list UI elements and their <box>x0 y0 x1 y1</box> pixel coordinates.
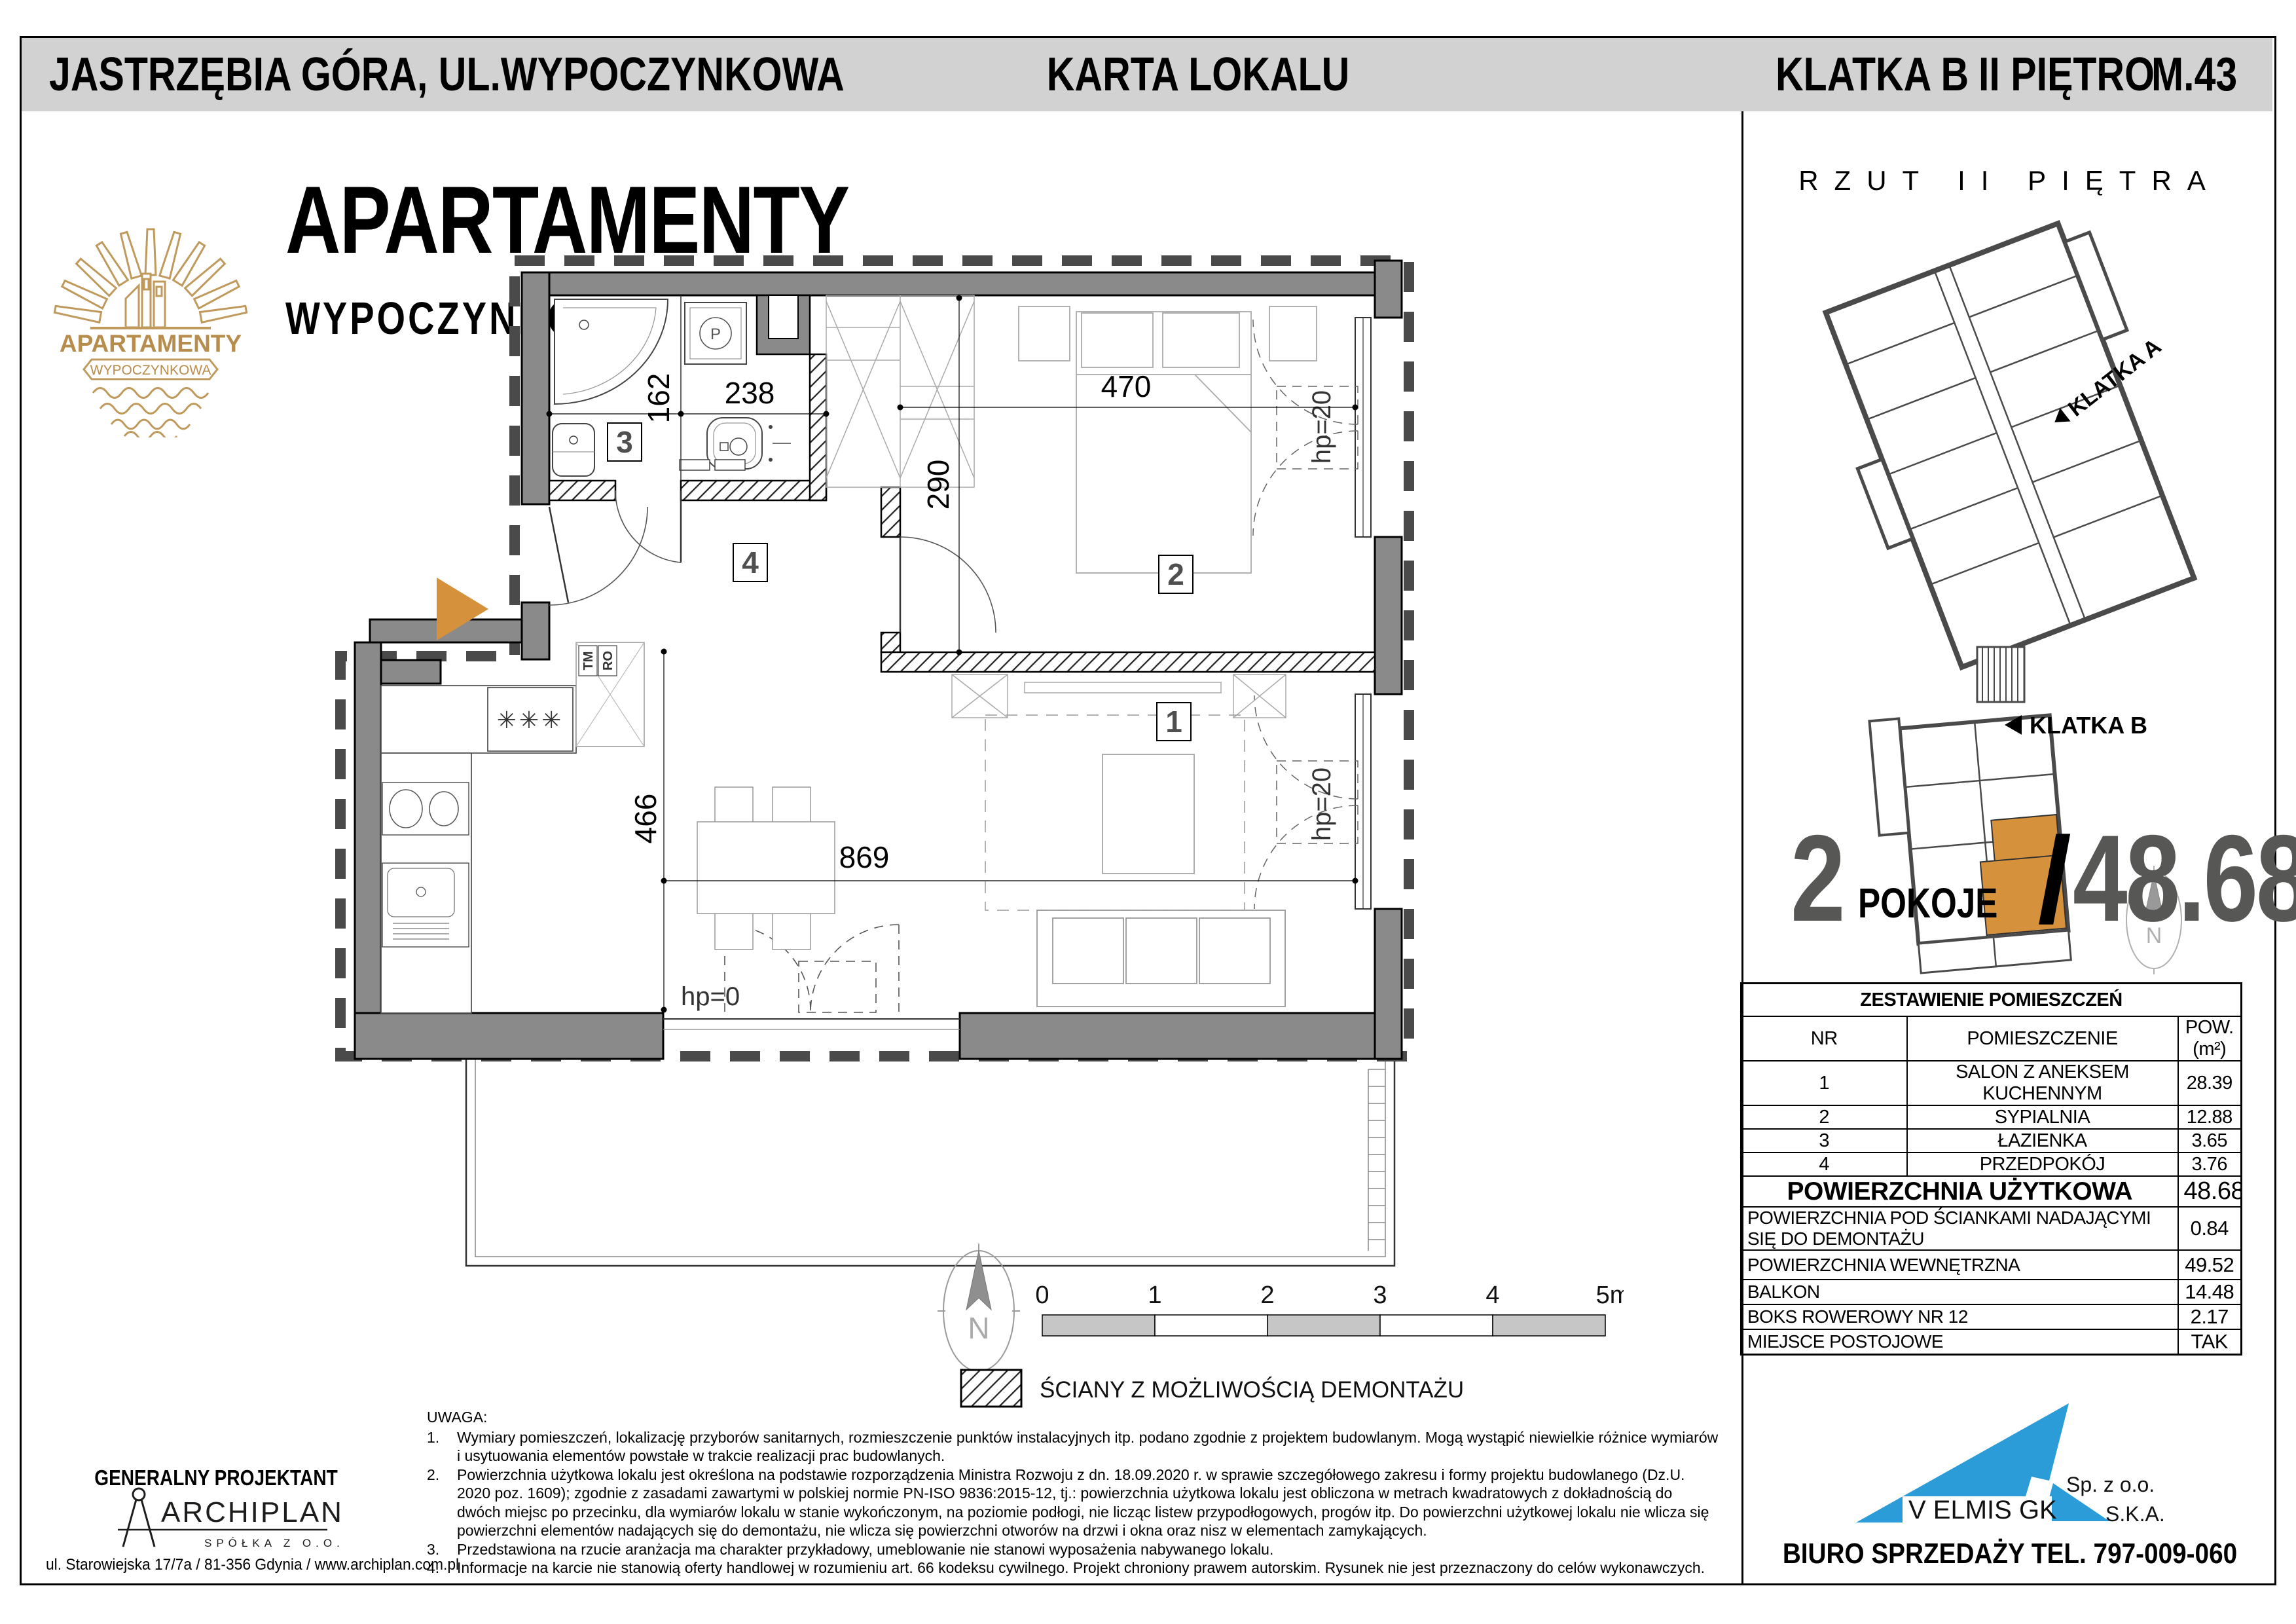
table-row: 4PRZEDPOKÓJ3.76 <box>1741 1153 2242 1176</box>
col-header-nr: NR <box>1741 1016 1907 1061</box>
svg-text:5m: 5m <box>1596 1282 1624 1309</box>
legend-hatch-swatch <box>961 1370 1021 1407</box>
table-row: 3ŁAZIENKA3.65 <box>1741 1129 2242 1153</box>
fridge-label-tm: TM <box>581 652 596 671</box>
svg-text:1: 1 <box>1148 1282 1161 1309</box>
dim-470: 470 <box>1101 369 1152 403</box>
dim-hp20-living: hp=20 <box>1307 767 1336 841</box>
bedroom-door <box>900 537 996 633</box>
unit-summary: 2 POKOJE / 48.68 m² <box>1791 830 2296 927</box>
svg-text:3: 3 <box>1373 1282 1387 1309</box>
dining-set <box>697 787 835 950</box>
room-label-1: 1 <box>1165 705 1182 739</box>
note-item: 2.Powierzchnia użytkowa lokalu jest okre… <box>427 1466 1720 1540</box>
column-divider <box>1741 111 1743 1583</box>
cooktop <box>382 783 469 835</box>
svg-text:2: 2 <box>1260 1282 1274 1309</box>
room-label-4: 4 <box>742 545 759 580</box>
entrance-door <box>549 507 647 605</box>
dim-hp20-bedroom: hp=20 <box>1307 390 1336 464</box>
table-row: 1SALON Z ANEKSEM KUCHENNYM28.39 <box>1741 1061 2242 1105</box>
logo-word: APARTAMENTY <box>60 330 242 357</box>
table-extra-row: POWIERZCHNIA WEWNĘTRZNA 49.52 <box>1741 1250 2242 1280</box>
seller-suffix-2: S.K.A. <box>2105 1502 2165 1526</box>
room-label-3: 3 <box>616 425 633 459</box>
table-row: 2SYPIALNIA12.88 <box>1741 1105 2242 1129</box>
header-staircase: KLATKA B <box>1776 38 1969 111</box>
notes-title: UWAGA: <box>427 1408 1720 1427</box>
seller-suffix-1: Sp. z o.o. <box>2066 1473 2155 1496</box>
stove-symbol: ✳✳✳ <box>497 707 564 733</box>
designer-address: ul. Starowiejska 17/7a / 81-356 Gdynia /… <box>46 1556 459 1574</box>
seller-company: V ELMIS GK <box>1908 1496 2057 1524</box>
kitchen: ✳✳✳ TM RO <box>381 642 644 1013</box>
scale-labels: 0 1 2 3 4 5m <box>1035 1282 1624 1309</box>
logo-building-icon <box>126 274 165 327</box>
table-extra-row: MIEJSCE POSTOJOWE TAK <box>1741 1329 2242 1355</box>
north-letter: N <box>968 1311 989 1345</box>
logo-banner: WYPOCZYNKOWA <box>90 363 211 378</box>
sales-office-contact: BIURO SPRZEDAŻY TEL. 797-009-060 <box>1776 1538 2244 1570</box>
washer-label: P <box>710 325 721 343</box>
note-item: 3.Przedstawiona na rzucie aranżacja ma c… <box>427 1540 1720 1559</box>
compass-icon <box>123 1488 155 1547</box>
dim-162: 162 <box>642 373 676 424</box>
tv-cabinet <box>952 674 1286 718</box>
dim-869: 869 <box>839 840 890 874</box>
site-plan-title: RZUT II PIĘTRA <box>1743 165 2276 196</box>
bed <box>1019 306 1317 573</box>
dim-466: 466 <box>629 794 663 844</box>
header-floor: II PIĘTRO <box>1978 38 2155 111</box>
seller-logo: V ELMIS GK Sp. z o.o. S.K.A. <box>1846 1398 2174 1529</box>
floor-plan: hp=20 hp=20 hp=0 <box>314 229 1624 1421</box>
archiplan-logo: ARCHIPLAN SPÓŁKA Z O.O. <box>105 1481 340 1560</box>
header-card-title: KARTA LOKALU <box>1010 38 1386 111</box>
apartment-card-page: JASTRZĘBIA GÓRA, UL.WYPOCZYNKOWA KARTA L… <box>0 0 2296 1624</box>
legend-text: ŚCIANY Z MOŻLIWOŚCIĄ DEMONTAŻU <box>1040 1376 1464 1403</box>
developer-logo: APARTAMENTY WYPOCZYNKOWA <box>52 110 249 437</box>
site-building-upper <box>1801 214 2218 676</box>
dim-290: 290 <box>921 460 955 510</box>
dim-238: 238 <box>725 376 775 410</box>
table-extra-row: BOKS ROWEROWY NR 12 2.17 <box>1741 1304 2242 1329</box>
balcony <box>466 1059 1394 1266</box>
bathroom-door <box>615 490 681 563</box>
archiplan-name: ARCHIPLAN <box>161 1496 340 1528</box>
col-header-area: POW.(m²) <box>2178 1016 2242 1061</box>
logo-waves <box>93 388 208 438</box>
header-location: JASTRZĘBIA GÓRA, UL.WYPOCZYNKOWA <box>49 38 845 111</box>
north-compass: N <box>938 1244 1020 1378</box>
note-item: 4.Informacje na karcie nie stanowią ofer… <box>427 1559 1720 1578</box>
site-stairs <box>1977 647 2024 702</box>
rooms-label: POKOJE <box>1858 882 1997 924</box>
sink <box>553 424 594 476</box>
kitchen-sink <box>382 863 469 947</box>
col-header-room: POMIESZCZENIE <box>1907 1016 2178 1061</box>
fridge-label-ro: RO <box>601 651 615 671</box>
note-item: 1.Wymiary pomieszczeń, lokalizację przyb… <box>427 1428 1720 1466</box>
svg-text:0: 0 <box>1035 1282 1049 1309</box>
coffee-table <box>1102 754 1194 874</box>
wardrobe <box>826 295 974 487</box>
table-title: ZESTAWIENIE POMIESZCZEŃ <box>1741 984 2242 1017</box>
room-label-2: 2 <box>1167 557 1184 591</box>
svg-text:4: 4 <box>1485 1282 1499 1309</box>
unit-area: 48.68 <box>2073 830 2296 927</box>
summary-slash: / <box>2037 835 2071 927</box>
table-extra-row: BALKON 14.48 <box>1741 1280 2242 1304</box>
archiplan-sub: SPÓŁKA Z O.O. <box>204 1537 340 1549</box>
table-extra-row: POWIERZCHNIA POD ŚCIANKAMI NADAJĄCYMI SI… <box>1741 1207 2242 1250</box>
sofa <box>1037 910 1285 1006</box>
header-unit-number: M.43 <box>2151 38 2237 111</box>
scale-bar <box>1042 1315 1605 1336</box>
table-total-row: POWIERZCHNIA UŻYTKOWA 48.68 <box>1741 1176 2242 1207</box>
svg-text:KLATKA B: KLATKA B <box>2030 712 2147 739</box>
dim-hp0: hp=0 <box>681 982 740 1011</box>
rooms-count: 2 <box>1791 830 1843 927</box>
washing-machine: P <box>685 303 746 364</box>
room-schedule-table: ZESTAWIENIE POMIESZCZEŃ NR POMIESZCZENIE… <box>1740 982 2242 1356</box>
notes-block: UWAGA: 1.Wymiary pomieszczeń, lokalizacj… <box>427 1408 1720 1578</box>
balcony-door <box>663 925 960 1029</box>
